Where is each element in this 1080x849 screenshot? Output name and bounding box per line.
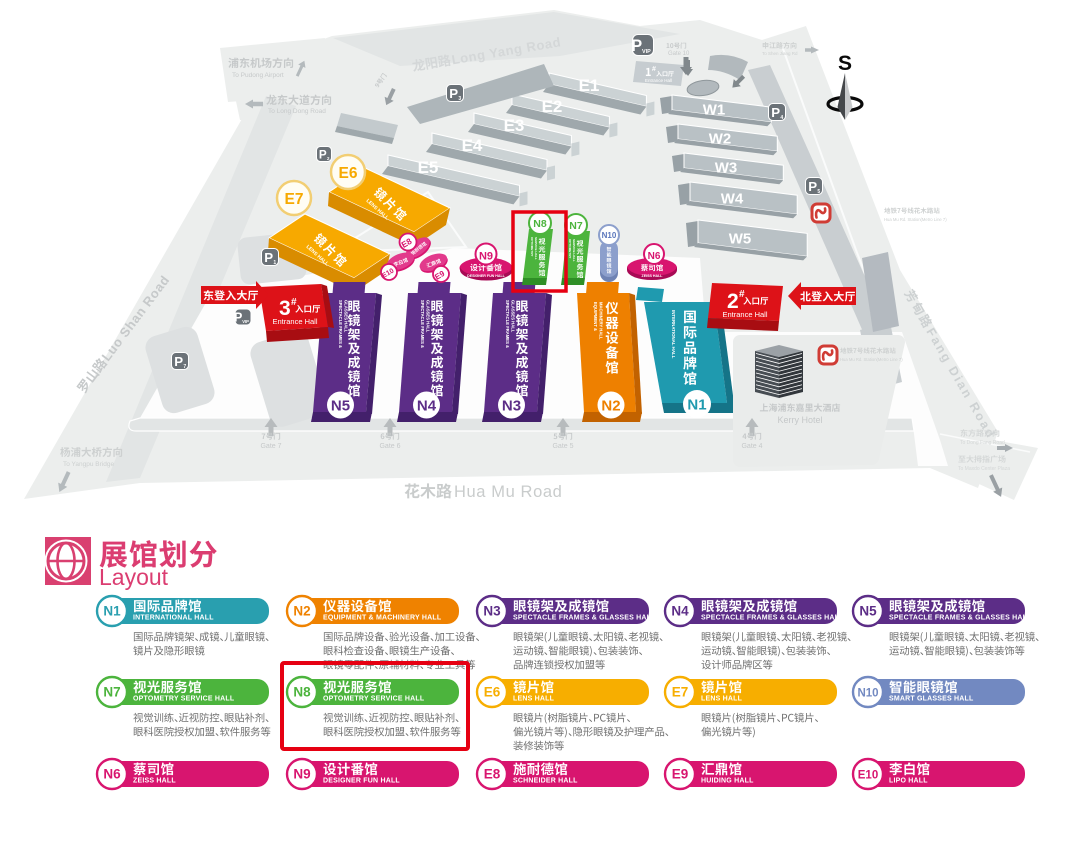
svg-text:To Pudong Airport: To Pudong Airport — [232, 72, 284, 79]
svg-text:E9: E9 — [672, 767, 689, 782]
svg-text:E2: E2 — [542, 97, 563, 116]
svg-text:N10: N10 — [602, 231, 617, 240]
svg-text:S: S — [838, 52, 852, 75]
svg-text:EQUIPMENT &: EQUIPMENT & — [593, 302, 598, 331]
svg-text:N7: N7 — [569, 220, 583, 232]
svg-text:MACHINERY HALL: MACHINERY HALL — [599, 302, 604, 340]
svg-text:Hua Mu Road: Hua Mu Road — [454, 483, 562, 501]
svg-text:E3: E3 — [504, 116, 525, 135]
svg-text:Gate 7: Gate 7 — [260, 443, 281, 450]
svg-text:Layout: Layout — [99, 564, 169, 590]
svg-text:N5: N5 — [859, 604, 877, 619]
svg-text:GLASSES HALL: GLASSES HALL — [344, 300, 349, 333]
svg-text:SPECTACLE FRAMES &: SPECTACLE FRAMES & — [420, 300, 425, 348]
svg-text:P: P — [771, 105, 780, 120]
svg-text:SPECTACLE FRAMES &: SPECTACLE FRAMES & — [505, 300, 510, 348]
svg-text:Entrance Hall: Entrance Hall — [645, 78, 672, 83]
svg-text:W2: W2 — [709, 131, 732, 148]
svg-text:W3: W3 — [715, 160, 738, 177]
svg-text:OPTOMETRY SERVICE HALL: OPTOMETRY SERVICE HALL — [133, 696, 235, 703]
svg-text:Kerry Hotel: Kerry Hotel — [777, 415, 822, 425]
svg-text:P: P — [264, 250, 273, 265]
svg-text:DESIGNER FUN HALL: DESIGNER FUN HALL — [467, 274, 506, 278]
svg-text:E6: E6 — [484, 685, 501, 700]
svg-text:N1: N1 — [687, 397, 706, 414]
svg-text:N9: N9 — [293, 767, 310, 782]
svg-text:E7: E7 — [672, 685, 689, 700]
svg-text:1: 1 — [273, 260, 276, 266]
svg-text:W1: W1 — [703, 102, 726, 119]
svg-text:4: 4 — [780, 115, 783, 121]
svg-text:E1: E1 — [579, 76, 600, 95]
svg-text:LIPO HALL: LIPO HALL — [889, 778, 928, 785]
svg-text:N2: N2 — [293, 604, 310, 619]
svg-text:INTERNATIONAL HALL: INTERNATIONAL HALL — [133, 615, 214, 622]
svg-text:Gate 4: Gate 4 — [741, 443, 762, 450]
svg-text:#: # — [291, 297, 297, 308]
svg-text:N8: N8 — [533, 218, 547, 230]
svg-text:W4: W4 — [721, 191, 744, 208]
svg-text:ZEISS HALL: ZEISS HALL — [133, 778, 176, 785]
svg-text:E8: E8 — [484, 767, 501, 782]
svg-text:DESIGNER FUN HALL: DESIGNER FUN HALL — [323, 778, 400, 785]
svg-text:OPTOMETRY: OPTOMETRY — [530, 237, 534, 257]
svg-text:W5: W5 — [729, 231, 752, 248]
svg-text:LENS HALL: LENS HALL — [513, 696, 555, 703]
svg-text:To Long Dong Road: To Long Dong Road — [268, 108, 326, 115]
svg-text:E7: E7 — [285, 191, 304, 208]
svg-text:E5: E5 — [418, 158, 439, 177]
svg-text:SPECTACLE FRAMES & GLASSES HAL: SPECTACLE FRAMES & GLASSES HALL — [701, 615, 844, 622]
svg-text:#: # — [652, 66, 656, 73]
svg-text:VIP: VIP — [242, 319, 249, 324]
svg-text:5: 5 — [817, 189, 820, 195]
svg-text:Gate 6: Gate 6 — [379, 443, 400, 450]
svg-text:E10: E10 — [858, 770, 878, 782]
svg-text:SPECTACLE FRAMES & GLASSES HAL: SPECTACLE FRAMES & GLASSES HALL — [889, 615, 1032, 622]
svg-text:P: P — [808, 179, 817, 194]
svg-text:Gate 10: Gate 10 — [668, 51, 690, 57]
svg-text:SERVICE HALL: SERVICE HALL — [572, 239, 576, 262]
svg-text:Entrance Hall: Entrance Hall — [722, 310, 767, 319]
svg-text:GLASSES HALL: GLASSES HALL — [426, 300, 431, 333]
svg-text:Hua Mu Rd. Station(Metro Line: Hua Mu Rd. Station(Metro Line 7) — [884, 217, 947, 222]
svg-text:N1: N1 — [103, 604, 121, 619]
svg-text:#: # — [739, 289, 745, 300]
svg-text:3: 3 — [458, 96, 461, 102]
svg-text:N5: N5 — [331, 398, 350, 415]
svg-text:P: P — [234, 310, 242, 324]
svg-text:To Yangpu Bridge: To Yangpu Bridge — [63, 461, 114, 468]
svg-text:HUIDING HALL: HUIDING HALL — [701, 778, 754, 785]
svg-text:LENS HALL: LENS HALL — [701, 696, 743, 703]
svg-text:P: P — [449, 86, 458, 101]
svg-text:N10: N10 — [857, 688, 878, 700]
svg-text:N4: N4 — [671, 604, 689, 619]
svg-text:EQUIPMENT & MACHINERY HALL: EQUIPMENT & MACHINERY HALL — [323, 615, 442, 622]
svg-text:N6: N6 — [103, 767, 121, 782]
svg-text:OPTOMETRY: OPTOMETRY — [568, 239, 572, 259]
svg-text:SPECTACLE FRAMES &: SPECTACLE FRAMES & — [338, 300, 343, 348]
svg-text:N9: N9 — [479, 251, 493, 263]
svg-text:Gate 5: Gate 5 — [552, 443, 573, 450]
svg-text:SCHNEIDER HALL: SCHNEIDER HALL — [513, 778, 578, 785]
svg-text:N2: N2 — [601, 398, 620, 415]
svg-text:OPTOMETRY SERVICE HALL: OPTOMETRY SERVICE HALL — [323, 696, 425, 703]
svg-text:Hua Mu Rd. Station(Metro Line: Hua Mu Rd. Station(Metro Line 7) — [840, 357, 903, 362]
svg-text:P: P — [631, 37, 642, 55]
svg-text:SERVICE HALL: SERVICE HALL — [534, 237, 538, 260]
svg-text:To Shen Jiang Rd: To Shen Jiang Rd — [762, 51, 798, 56]
svg-text:To Dong Fang Road: To Dong Fang Road — [960, 440, 1005, 446]
svg-text:P: P — [174, 354, 183, 369]
svg-text:N4: N4 — [417, 398, 437, 415]
svg-text:SMART GLASSES HALL: SMART GLASSES HALL — [889, 696, 974, 703]
svg-text:N6: N6 — [648, 251, 661, 262]
svg-text:N3: N3 — [502, 398, 521, 415]
svg-text:Entrance Hall: Entrance Hall — [272, 317, 317, 326]
svg-text:VIP: VIP — [642, 49, 651, 55]
svg-text:GLASSES HALL: GLASSES HALL — [511, 300, 516, 333]
svg-text:E6: E6 — [339, 165, 358, 182]
svg-text:E4: E4 — [462, 136, 483, 155]
svg-text:To Maxdo Center Plaza: To Maxdo Center Plaza — [958, 466, 1010, 472]
svg-text:7: 7 — [183, 364, 186, 370]
svg-text:N8: N8 — [293, 685, 311, 700]
svg-text:P: P — [319, 149, 327, 162]
svg-text:INTERNATIONAL HALL: INTERNATIONAL HALL — [671, 310, 676, 359]
svg-text:N7: N7 — [103, 685, 120, 700]
svg-text:SPECTACLE FRAMES & GLASSES HAL: SPECTACLE FRAMES & GLASSES HALL — [513, 615, 656, 622]
svg-text:N3: N3 — [483, 604, 501, 619]
svg-text:ZEISS HALL: ZEISS HALL — [642, 274, 664, 278]
